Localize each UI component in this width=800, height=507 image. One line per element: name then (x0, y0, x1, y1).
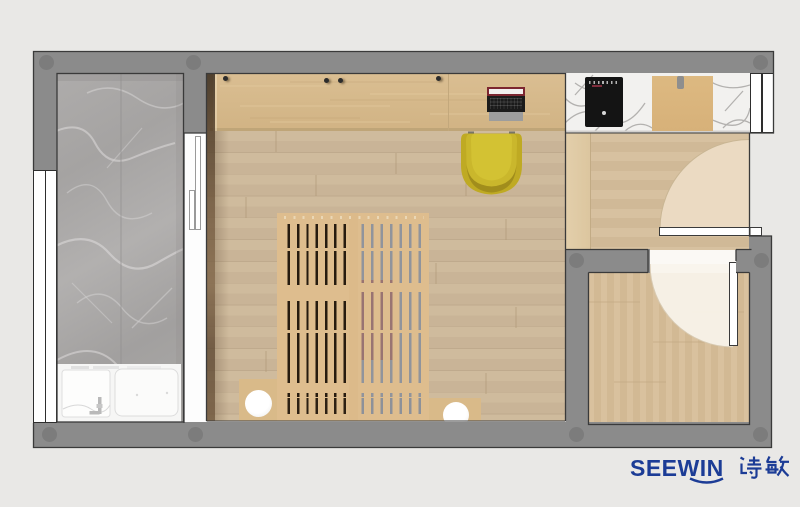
svg-text:SEEWIN: SEEWIN (630, 455, 724, 481)
